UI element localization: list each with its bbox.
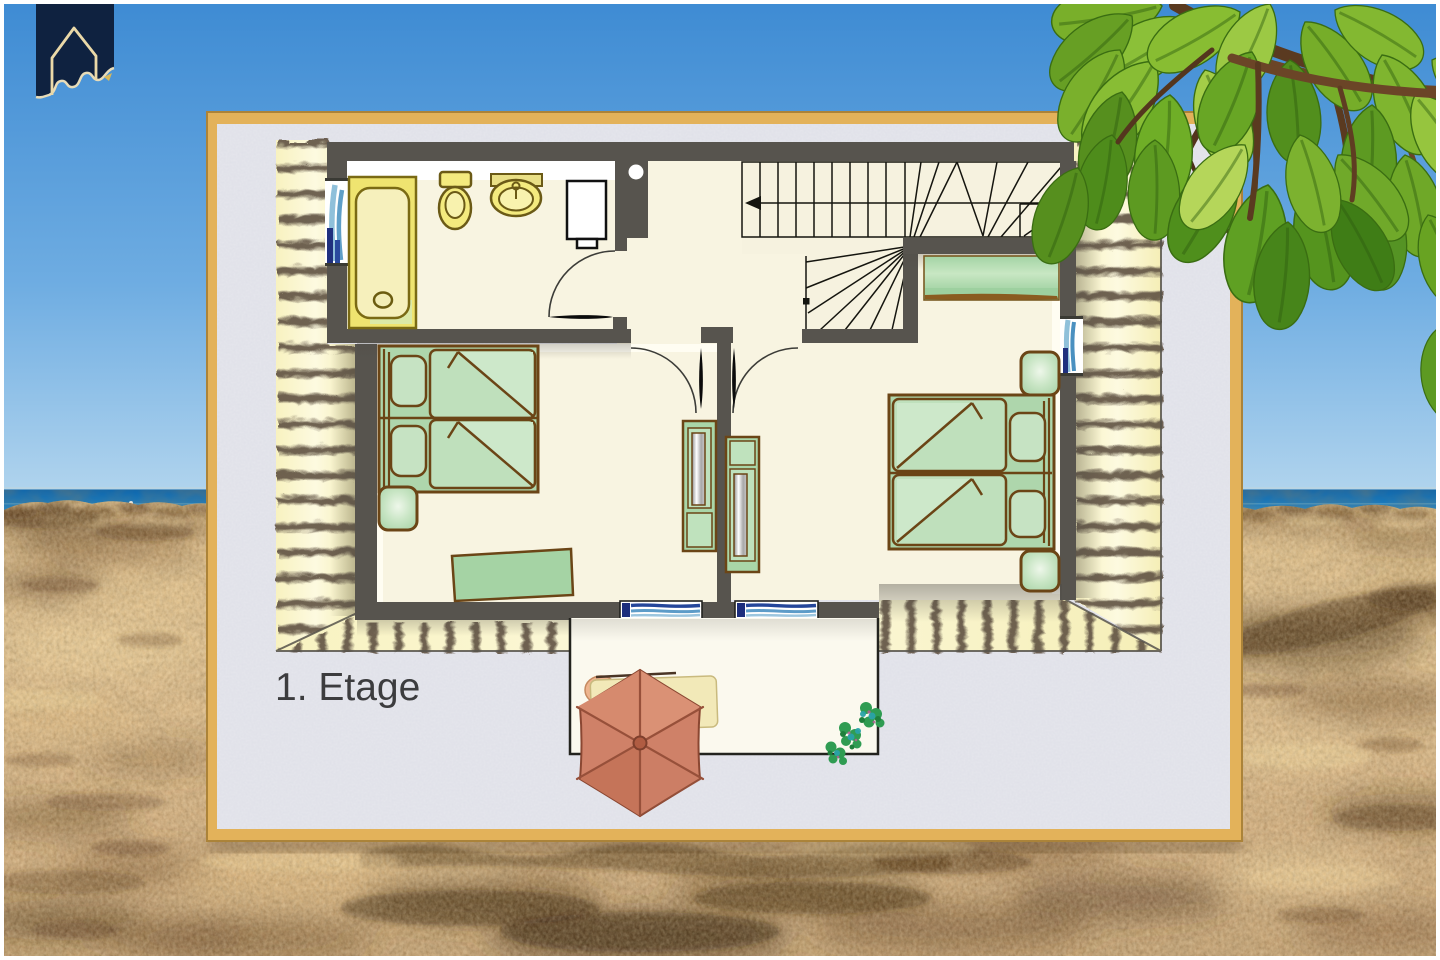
svg-text:1. Etage: 1. Etage — [275, 666, 420, 709]
